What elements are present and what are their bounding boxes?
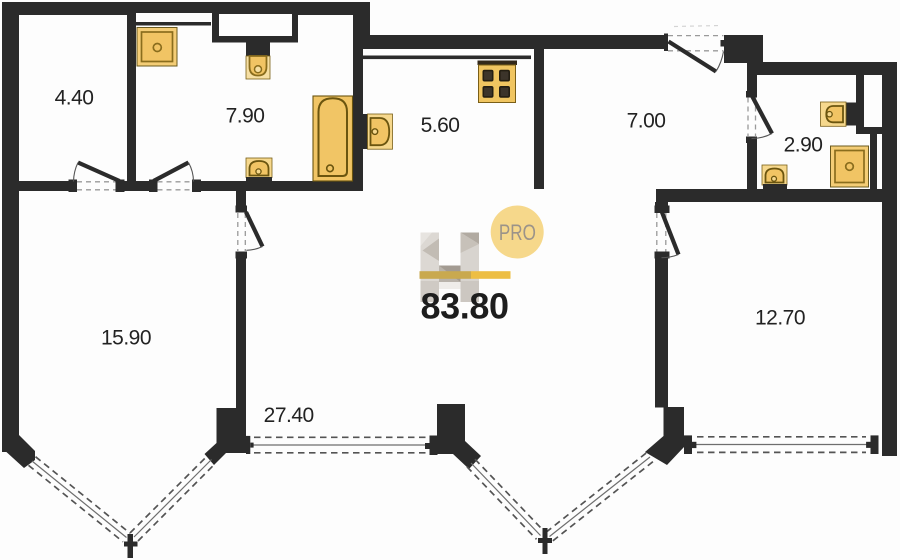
svg-text:PRO: PRO (499, 220, 536, 245)
svg-text:83.80: 83.80 (421, 286, 509, 327)
svg-text:5.60: 5.60 (421, 114, 460, 137)
svg-text:27.40: 27.40 (264, 404, 314, 427)
svg-text:12.70: 12.70 (755, 307, 805, 330)
svg-text:2.90: 2.90 (784, 134, 823, 157)
svg-text:15.90: 15.90 (101, 327, 151, 350)
svg-text:4.40: 4.40 (55, 87, 94, 110)
svg-text:7.90: 7.90 (226, 105, 265, 128)
svg-text:7.00: 7.00 (627, 110, 666, 133)
